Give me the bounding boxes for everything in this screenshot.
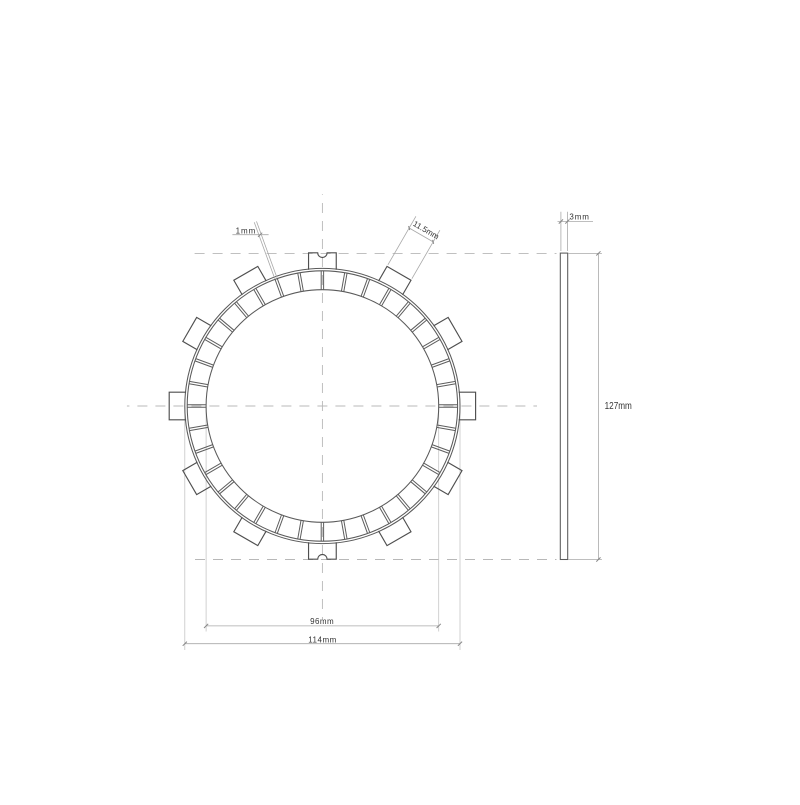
svg-text:3mm: 3mm bbox=[569, 212, 589, 221]
svg-text:96mm: 96mm bbox=[310, 617, 334, 626]
svg-text:127mm: 127mm bbox=[605, 400, 632, 411]
svg-text:1mm: 1mm bbox=[236, 226, 256, 235]
svg-text:114mm: 114mm bbox=[308, 635, 336, 644]
